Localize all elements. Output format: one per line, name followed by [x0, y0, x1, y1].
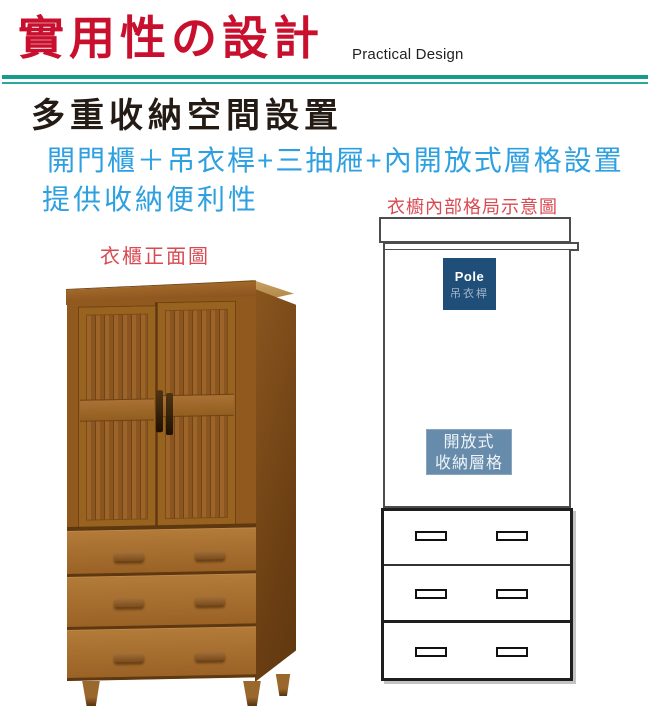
page-title: 實用性の設計 — [18, 2, 324, 68]
product-info-page: 實用性の設計 Practical Design 多重收納空間設置 開門櫃＋吊衣桿… — [0, 0, 650, 710]
wardrobe-drawer-2 — [67, 573, 256, 630]
drawer-divider-1 — [384, 564, 570, 566]
pole-label-english: Pole — [443, 269, 496, 284]
diagram-drawer-handle — [496, 647, 528, 657]
interior-diagram-caption: 衣櫥內部格局示意圖 — [387, 193, 558, 219]
diagram-drawer-handle — [415, 589, 447, 599]
wardrobe-leg-back-right — [274, 674, 292, 696]
drawer-handle — [195, 596, 225, 606]
benefit-description-line: 提供收納便利性 — [42, 178, 259, 218]
feature-description-line: 開門櫃＋吊衣桿+三抽屜+內開放式層格設置 — [47, 139, 624, 179]
diagram-drawer-handle — [415, 647, 447, 657]
wardrobe-drawer-1 — [67, 527, 256, 577]
front-view-caption: 衣櫃正面圖 — [100, 240, 210, 269]
pole-label-chinese: 吊衣桿 — [443, 285, 496, 301]
drawer-divider-2 — [384, 620, 570, 623]
drawer-handle — [195, 651, 225, 661]
wardrobe-drawer-3 — [67, 626, 256, 681]
drawer-handle — [114, 552, 144, 562]
section-heading: 多重收納空間設置 — [31, 88, 343, 137]
hanging-pole-label-box: Pole 吊衣桿 — [443, 258, 496, 310]
diagram-crown-section — [379, 217, 571, 243]
shelf-label-line2: 收納層格 — [427, 453, 511, 474]
wardrobe-front-photo — [63, 275, 298, 708]
drawer-handle — [195, 550, 225, 560]
diagram-drawer-handle — [496, 531, 528, 541]
diagram-drawer-section — [381, 508, 573, 681]
page-subtitle-english: Practical Design — [352, 46, 464, 63]
diagram-drawer-handle — [496, 589, 528, 599]
wardrobe-side-panel — [255, 289, 296, 682]
drawer-handle — [114, 653, 144, 663]
wardrobe-front-face — [67, 296, 256, 681]
left-door-handle — [156, 390, 163, 432]
wardrobe-leg-front-right — [241, 681, 263, 706]
teal-divider-thin — [2, 82, 648, 84]
diagram-drawer-handle — [415, 531, 447, 541]
left-door-mid-rail — [80, 398, 154, 421]
wardrobe-leg-front-left — [80, 681, 102, 706]
teal-divider-thick — [2, 75, 648, 79]
drawer-handle — [114, 598, 144, 608]
shelf-label-line1: 開放式 — [427, 432, 511, 453]
right-door-handle — [166, 393, 173, 435]
open-shelf-label-box: 開放式 收納層格 — [426, 429, 512, 475]
